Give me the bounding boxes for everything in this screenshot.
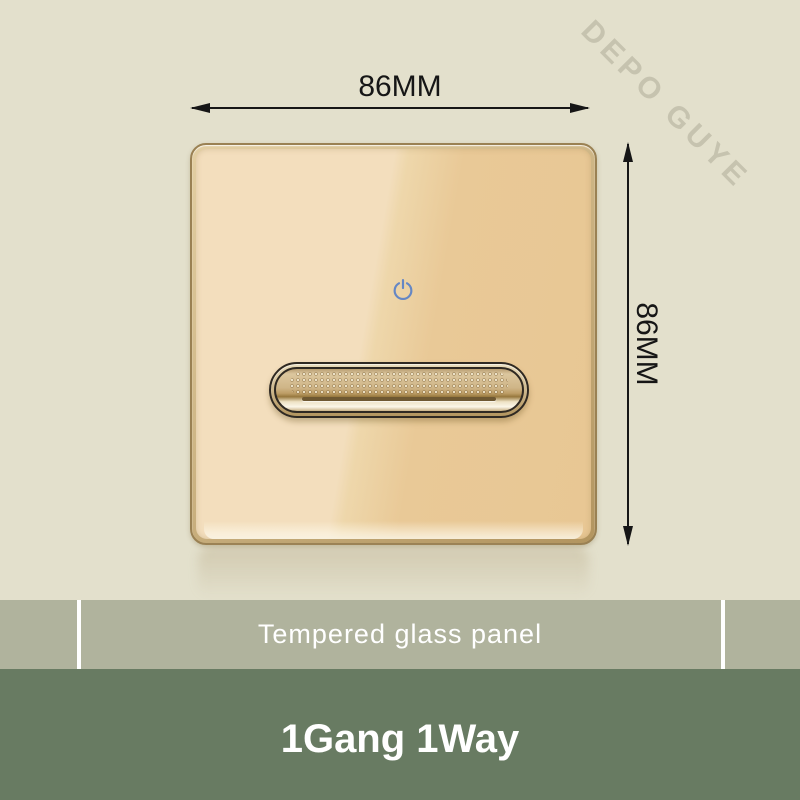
product-type-label: 1Gang 1Way xyxy=(0,669,800,800)
switch-panel xyxy=(190,143,597,545)
watermark: DEPO GUYE xyxy=(574,14,756,196)
arrow-down-icon xyxy=(623,526,633,546)
width-dimension-label: 86MM xyxy=(300,70,500,104)
spec-banner-label: Tempered glass panel xyxy=(0,600,800,669)
arrow-up-icon xyxy=(623,142,633,162)
panel-reflection xyxy=(198,546,589,598)
product-image: DEPO GUYE 86MM 86MM Tempered glass panel xyxy=(0,0,800,800)
power-icon xyxy=(390,277,416,303)
arrow-right-icon xyxy=(570,103,590,113)
glass-face xyxy=(196,149,591,539)
width-dimension-arrow xyxy=(192,107,588,109)
height-dimension-label: 86MM xyxy=(629,299,663,389)
product-type-banner: 1Gang 1Way xyxy=(0,669,800,800)
rocker-knurled-texture xyxy=(290,372,508,396)
rocker-groove xyxy=(302,397,496,401)
spec-banner: Tempered glass panel xyxy=(0,600,800,669)
rocker-face xyxy=(274,367,524,413)
arrow-left-icon xyxy=(190,103,210,113)
rocker-button xyxy=(269,362,529,418)
divider-right xyxy=(721,600,725,669)
